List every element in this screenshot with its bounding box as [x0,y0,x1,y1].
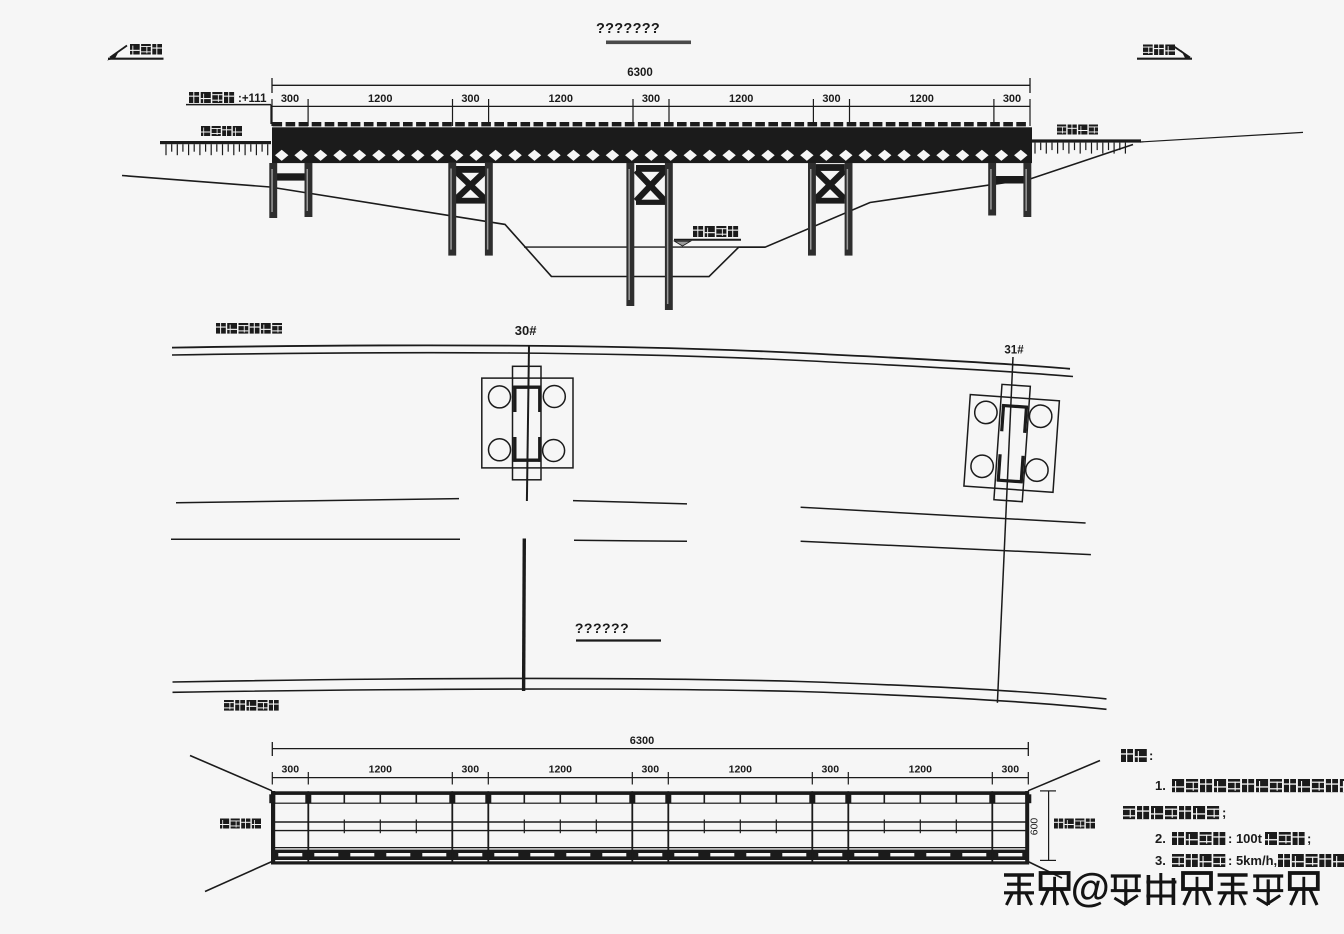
svg-text::: : [1149,748,1153,763]
svg-text:6300: 6300 [627,67,653,79]
svg-text:300: 300 [281,93,299,105]
svg-text:1200: 1200 [909,764,933,776]
svg-text::+111: :+111 [238,93,267,105]
svg-text:1.: 1. [1155,778,1166,793]
svg-text:;: ; [1307,831,1311,846]
svg-text:1200: 1200 [729,93,753,105]
svg-text:@: @ [1071,866,1110,910]
svg-text:3.: 3. [1155,853,1166,868]
svg-text:300: 300 [642,93,660,105]
svg-text:300: 300 [642,764,660,776]
svg-text:300: 300 [822,93,840,105]
svg-text:31#: 31# [1004,345,1024,357]
svg-text:: 5km/h,: : 5km/h, [1228,853,1277,868]
svg-text:600: 600 [1029,818,1041,836]
svg-text:2.: 2. [1155,831,1166,846]
svg-text:???????: ??????? [596,21,660,37]
svg-text:: 100t: : 100t [1228,831,1263,846]
svg-text:300: 300 [282,764,300,776]
svg-text:1200: 1200 [909,93,933,105]
svg-text:300: 300 [822,764,840,776]
svg-text:1200: 1200 [368,93,392,105]
svg-text:1200: 1200 [549,764,573,776]
svg-text:30#: 30# [515,323,537,338]
svg-text:6300: 6300 [630,735,654,747]
svg-text:300: 300 [461,93,479,105]
svg-text:300: 300 [462,764,480,776]
svg-text:1200: 1200 [549,93,573,105]
svg-text:;: ; [1222,805,1226,820]
svg-text:1200: 1200 [729,764,753,776]
svg-text:??????: ?????? [575,620,629,636]
svg-text:300: 300 [1002,764,1020,776]
svg-text:300: 300 [1003,93,1021,105]
svg-text:1200: 1200 [369,764,393,776]
